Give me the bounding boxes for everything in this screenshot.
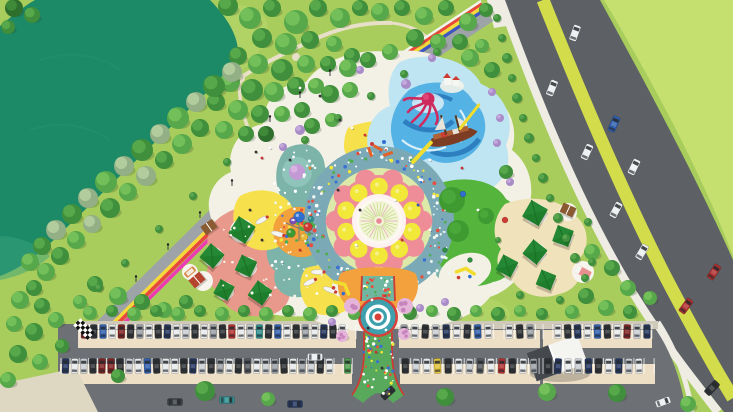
corridor-border xyxy=(394,276,395,301)
corridor-border xyxy=(361,276,362,301)
aerial-park-render xyxy=(0,0,733,412)
scene-svg xyxy=(0,0,733,412)
bullseye-center xyxy=(375,314,382,321)
